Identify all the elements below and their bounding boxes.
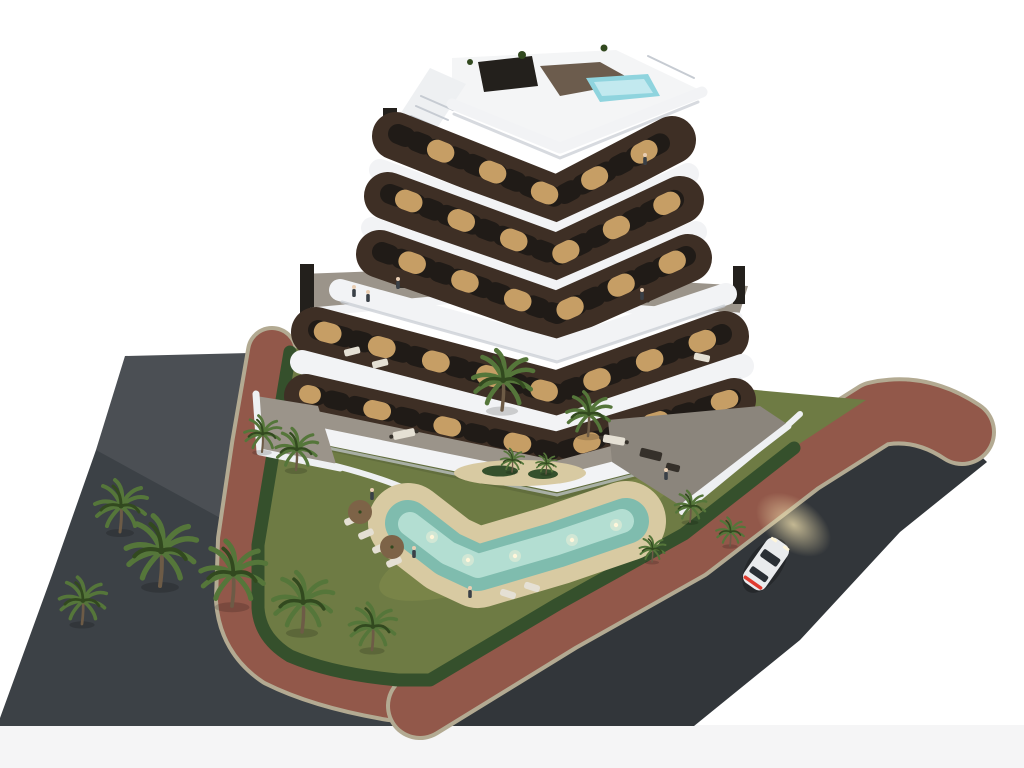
person bbox=[468, 586, 472, 598]
person bbox=[370, 488, 374, 500]
render-bottom-edge bbox=[0, 725, 1024, 768]
person bbox=[643, 153, 647, 165]
roof-planter bbox=[601, 45, 608, 52]
person bbox=[396, 277, 400, 289]
pool-light bbox=[570, 538, 574, 542]
scene-svg: Aerial dusk rendering of a modern apartm… bbox=[0, 0, 1024, 768]
parasol-pole bbox=[358, 510, 361, 513]
person bbox=[640, 288, 644, 300]
island-sand bbox=[454, 460, 586, 486]
person bbox=[664, 468, 668, 480]
parasol-pole bbox=[390, 545, 393, 548]
roof-planter bbox=[467, 59, 473, 65]
pool-light bbox=[430, 535, 434, 539]
render-canvas: Aerial dusk rendering of a modern apartm… bbox=[0, 0, 1024, 768]
pool-light bbox=[466, 558, 470, 562]
pool-light bbox=[614, 523, 618, 527]
chimney-left bbox=[300, 264, 314, 314]
pool-light bbox=[513, 554, 517, 558]
roof-planter bbox=[518, 51, 526, 59]
person bbox=[412, 546, 416, 558]
roof-pool-water-highlight bbox=[594, 79, 653, 96]
roof-pergola bbox=[478, 56, 538, 92]
person bbox=[352, 285, 356, 297]
person bbox=[366, 290, 370, 302]
